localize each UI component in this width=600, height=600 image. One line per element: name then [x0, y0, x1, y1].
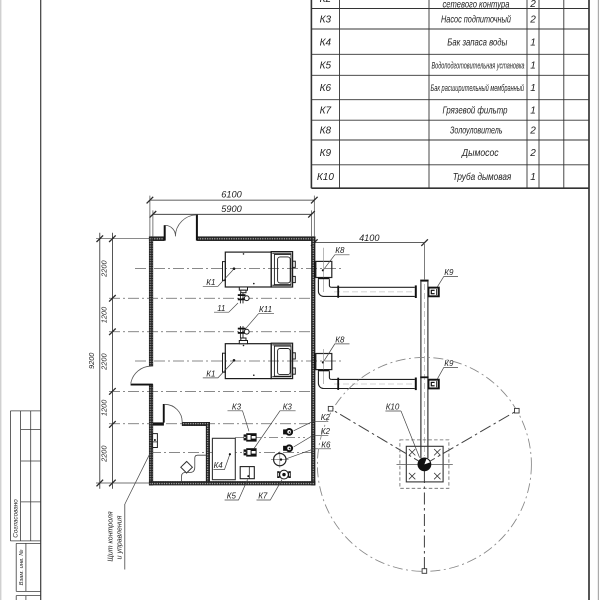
- svg-text:1200: 1200: [100, 399, 109, 416]
- svg-text:К8: К8: [320, 126, 332, 137]
- svg-text:2200: 2200: [100, 445, 109, 463]
- svg-text:2: 2: [529, 0, 536, 10]
- svg-text:К8: К8: [335, 246, 345, 255]
- svg-text:2200: 2200: [100, 259, 109, 277]
- svg-text:К9: К9: [444, 268, 454, 277]
- svg-text:1: 1: [530, 106, 536, 117]
- svg-text:К1: К1: [206, 278, 215, 287]
- svg-text:2: 2: [529, 148, 536, 159]
- svg-text:и управления: и управления: [116, 515, 123, 559]
- svg-text:К7: К7: [320, 106, 332, 117]
- svg-text:Золоуловитель: Золоуловитель: [450, 126, 503, 137]
- svg-text:К5: К5: [320, 60, 332, 71]
- svg-text:1200: 1200: [100, 306, 109, 323]
- svg-text:Бак расширительный мембранный: Бак расширительный мембранный: [431, 83, 525, 93]
- svg-text:1: 1: [530, 37, 536, 48]
- svg-text:К7: К7: [258, 492, 268, 501]
- svg-text:Бак запаса воды: Бак запаса воды: [447, 37, 507, 48]
- svg-text:2: 2: [529, 14, 536, 25]
- svg-text:К6: К6: [321, 440, 331, 449]
- svg-text:9200: 9200: [87, 352, 96, 369]
- svg-text:К9: К9: [444, 359, 454, 368]
- svg-text:К2: К2: [320, 0, 332, 5]
- svg-text:К3: К3: [283, 402, 293, 411]
- svg-text:К11: К11: [259, 305, 272, 314]
- svg-text:Грязевой фильтр: Грязевой фильтр: [443, 105, 508, 117]
- svg-text:К8: К8: [335, 335, 345, 344]
- svg-text:К4: К4: [320, 37, 332, 48]
- svg-text:К9: К9: [320, 148, 332, 159]
- svg-text:1: 1: [530, 60, 536, 71]
- svg-text:11: 11: [217, 304, 225, 313]
- svg-text:Насос подпиточный: Насос подпиточный: [441, 14, 511, 25]
- svg-text:6100: 6100: [221, 190, 242, 200]
- svg-text:Дымосос: Дымосос: [461, 148, 498, 159]
- svg-text:К3: К3: [320, 14, 332, 25]
- svg-text:2200: 2200: [100, 352, 109, 370]
- svg-text:4100: 4100: [359, 233, 380, 243]
- svg-text:Труба дымовая: Труба дымовая: [453, 171, 512, 183]
- svg-text:К2: К2: [321, 413, 331, 422]
- svg-text:К6: К6: [320, 83, 332, 94]
- svg-text:Водоподготовительная установка: Водоподготовительная установка: [432, 60, 525, 70]
- svg-text:1: 1: [530, 83, 536, 94]
- svg-text:К1: К1: [206, 369, 215, 378]
- svg-text:сетевого контура: сетевого контура: [443, 0, 510, 10]
- svg-text:К10: К10: [386, 402, 400, 411]
- svg-text:Взам. инв. №: Взам. инв. №: [19, 549, 25, 585]
- svg-text:1: 1: [530, 172, 536, 183]
- svg-text:Согласовано: Согласовано: [12, 499, 19, 538]
- svg-text:К5: К5: [227, 492, 237, 501]
- svg-text:К10: К10: [317, 172, 334, 183]
- svg-text:К4: К4: [214, 461, 224, 470]
- svg-text:Щит контроля: Щит контроля: [107, 511, 114, 562]
- svg-text:5900: 5900: [221, 204, 242, 214]
- svg-text:К3: К3: [232, 402, 242, 411]
- svg-text:2: 2: [529, 126, 536, 137]
